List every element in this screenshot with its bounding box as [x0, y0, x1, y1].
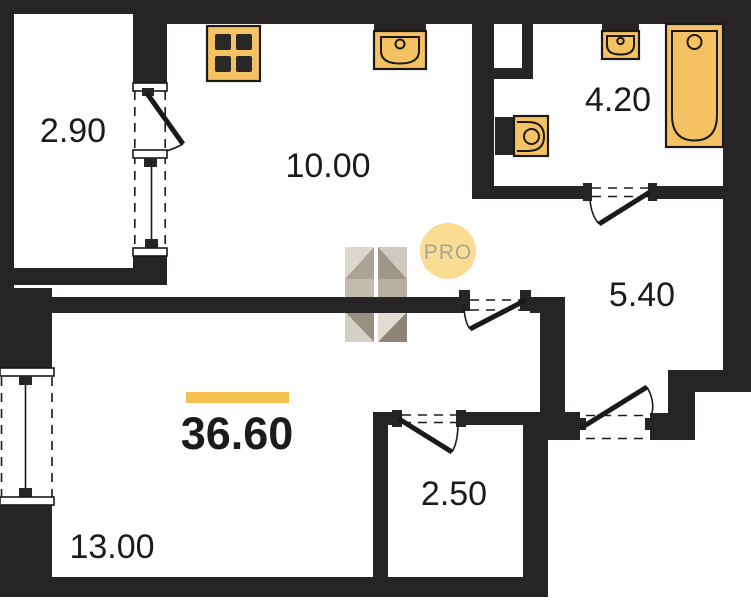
stove-icon [207, 26, 260, 81]
wall-balcony-divider-top [133, 14, 167, 91]
washbasin-icon [602, 24, 639, 59]
wall-kitchen-bath-divider [472, 24, 494, 186]
stove-body [207, 26, 260, 81]
wall-balcony-bottom [12, 268, 167, 285]
wall-top-outer-thick [133, 0, 751, 24]
window-sill [133, 248, 167, 256]
window-sill [0, 497, 54, 505]
toilet-tank [495, 117, 514, 155]
wall-bathroom-bottom-right [650, 186, 751, 199]
wall-right-step [668, 370, 751, 392]
stove-burner [236, 34, 252, 50]
floor-plan-canvas: PRO 2.90 10.00 4.20 5.40 2.50 13.00 36.6… [0, 0, 751, 600]
sink-drain [396, 40, 405, 49]
wall-storage-top-left [373, 412, 395, 425]
wall-bathroom-bottom-left [472, 186, 585, 199]
room-label-living-room: 13.00 [69, 528, 154, 566]
door-jamb [583, 183, 592, 201]
watermark-pro-badge: PRO [420, 223, 476, 279]
wall-shaft-bottom [494, 68, 533, 79]
wall-storage-left [373, 425, 388, 577]
stove-burner [215, 56, 231, 72]
wall-left-outer [0, 0, 14, 295]
window-nub [144, 158, 157, 167]
wall-kitchen-bottom-left [14, 297, 465, 313]
floor-plan: PRO 2.90 10.00 4.20 5.40 2.50 13.00 36.6… [0, 0, 751, 600]
washbasin-drain [617, 38, 623, 44]
wall-storage-right [523, 412, 548, 597]
room-label-hallway: 5.40 [609, 276, 675, 314]
wall-bottom-outer [0, 577, 548, 597]
room-label-kitchen: 10.00 [285, 147, 370, 185]
pro-badge-text: PRO [424, 241, 473, 264]
window-sill [0, 368, 54, 376]
window-nub [19, 488, 32, 497]
sink-bracket [374, 22, 426, 31]
room-label-storage: 2.50 [421, 475, 487, 513]
door-jamb [645, 418, 653, 430]
total-area-accent-bar [186, 392, 289, 403]
bathtub-icon [666, 24, 723, 147]
room-label-bathroom: 4.20 [585, 81, 651, 119]
wall-left-pier-lower [0, 500, 52, 577]
stove-burner [236, 56, 252, 72]
stove-burner [215, 34, 231, 50]
window-sill [133, 150, 167, 158]
kitchen-sink-icon [374, 22, 426, 69]
room-label-balcony: 2.90 [40, 112, 106, 150]
wall-entrance-right [650, 413, 695, 440]
toilet-drain [524, 129, 539, 144]
toilet-icon [495, 116, 548, 156]
window-nub [145, 239, 158, 248]
bathtub-drain [688, 35, 702, 49]
total-area-label: 36.60 [181, 408, 294, 459]
